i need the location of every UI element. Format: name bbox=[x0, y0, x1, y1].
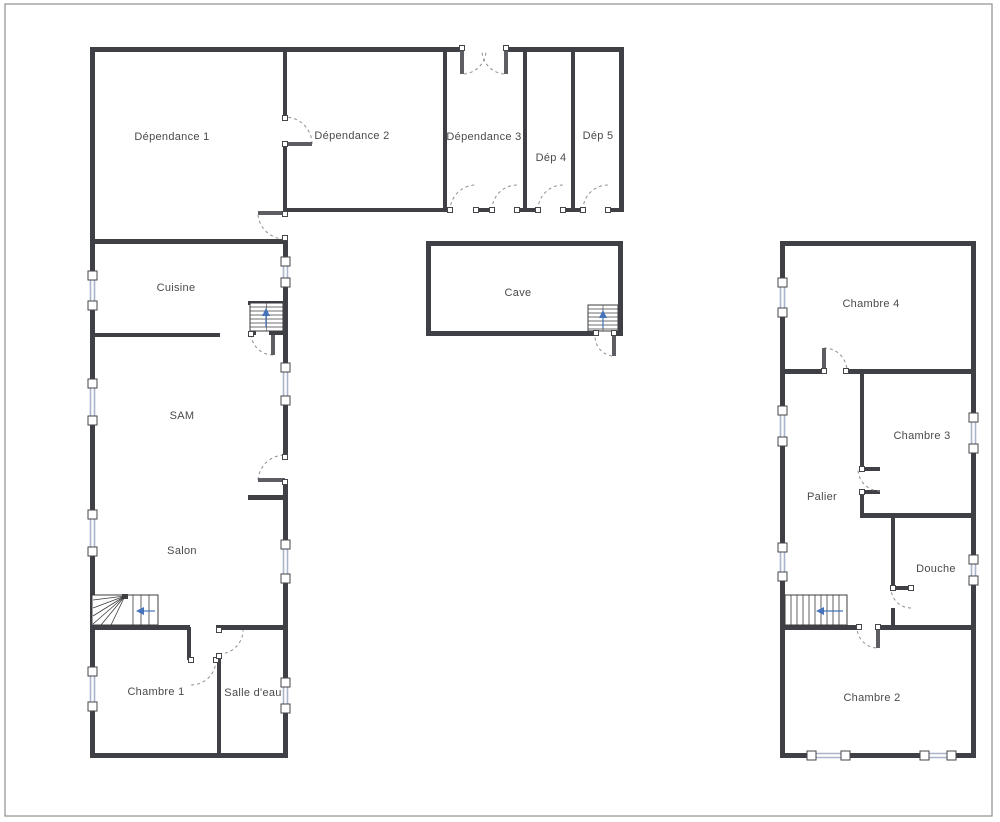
window-frame-square bbox=[920, 751, 929, 760]
porte-chambre-4-leaf bbox=[822, 348, 826, 371]
window-frame-square bbox=[947, 751, 956, 760]
wall bbox=[850, 753, 920, 758]
door-hinge-dot bbox=[490, 208, 495, 213]
door-hinge-dot bbox=[561, 208, 566, 213]
wall bbox=[780, 369, 824, 374]
porte-chambre-4-arc bbox=[824, 348, 847, 371]
porte-dependance1-dependance2-arc bbox=[285, 117, 312, 144]
wall bbox=[846, 369, 976, 374]
window-frame-square bbox=[778, 308, 787, 317]
wall bbox=[283, 244, 288, 257]
room-label-salon: Salon bbox=[167, 545, 197, 557]
wall bbox=[780, 753, 807, 758]
window-frame-square bbox=[778, 278, 787, 287]
wall bbox=[426, 241, 623, 246]
room-label-dep-4: Dép 4 bbox=[536, 152, 567, 164]
wall bbox=[90, 47, 460, 52]
porte-escalier-cuisine-leaf bbox=[271, 335, 275, 355]
porte-dep4-sud-arc bbox=[538, 185, 563, 210]
room-label-palier: Palier bbox=[807, 491, 837, 503]
window-frame-square bbox=[88, 667, 97, 676]
door-hinge-dot bbox=[283, 455, 288, 460]
window-frame-square bbox=[969, 576, 978, 585]
wall bbox=[283, 713, 288, 758]
porte-dep5-sud-arc bbox=[583, 185, 608, 210]
door-hinge-dot bbox=[612, 331, 617, 336]
porte-chambre-2-arc bbox=[857, 627, 876, 648]
wall bbox=[283, 482, 288, 540]
window-frame-square bbox=[841, 751, 850, 760]
door-hinge-dot bbox=[283, 212, 288, 217]
window-frame-square bbox=[281, 363, 290, 372]
wall bbox=[517, 208, 538, 212]
window-frame-square bbox=[281, 257, 290, 266]
window-frame-square bbox=[807, 751, 816, 760]
window-frame-square bbox=[281, 678, 290, 687]
wall bbox=[780, 581, 785, 758]
porte-chambre-1-arc bbox=[191, 660, 216, 685]
wall bbox=[571, 47, 575, 212]
wall bbox=[283, 47, 287, 118]
door-hinge-dot bbox=[460, 46, 465, 51]
window-frame-square bbox=[281, 540, 290, 549]
window-frame-square bbox=[281, 396, 290, 405]
wall bbox=[90, 753, 288, 758]
window-frame-square bbox=[88, 271, 97, 280]
wall bbox=[90, 711, 95, 758]
wall bbox=[971, 585, 976, 758]
door-hinge-dot bbox=[283, 480, 288, 485]
wall bbox=[90, 425, 95, 510]
window-frame-square bbox=[969, 444, 978, 453]
door-hinge-dot bbox=[504, 46, 509, 51]
wall bbox=[90, 333, 220, 337]
wall bbox=[780, 317, 785, 406]
porte-chambre-3-arc bbox=[858, 469, 880, 491]
wall bbox=[780, 446, 785, 543]
porte-sam-exterieur-leaf bbox=[258, 478, 285, 482]
wall bbox=[891, 608, 895, 627]
wall bbox=[248, 495, 285, 500]
wall bbox=[971, 241, 976, 413]
room-label-chambre-4: Chambre 4 bbox=[842, 298, 899, 310]
porte-couloir-dependance1-leaf bbox=[258, 211, 285, 215]
window-frame-square bbox=[778, 437, 787, 446]
room-label-douche: Douche bbox=[916, 563, 956, 575]
door-hinge-dot bbox=[448, 208, 453, 213]
floorplan-page: Dépendance 1 Dépendance 2 Dépendance 3 D… bbox=[0, 0, 1000, 822]
wall bbox=[285, 208, 450, 212]
wall bbox=[426, 331, 596, 336]
wall bbox=[780, 625, 859, 630]
wall bbox=[283, 405, 288, 457]
room-label-cuisine: Cuisine bbox=[157, 282, 196, 294]
room-label-chambre-2: Chambre 2 bbox=[843, 692, 900, 704]
room-label-cave: Cave bbox=[505, 287, 532, 299]
door-hinge-dot bbox=[876, 625, 881, 630]
window-frame-square bbox=[88, 379, 97, 388]
door-hinge-dot bbox=[860, 490, 865, 495]
window-frame-square bbox=[778, 572, 787, 581]
door-hinge-dot bbox=[581, 208, 586, 213]
door-hinge-dot bbox=[857, 625, 862, 630]
room-label-chambre-3: Chambre 3 bbox=[893, 430, 950, 442]
wall bbox=[891, 513, 895, 590]
door-hinge-dot bbox=[217, 654, 222, 659]
wall bbox=[619, 47, 624, 212]
wall bbox=[283, 144, 287, 214]
wall bbox=[90, 310, 95, 379]
wall bbox=[283, 287, 288, 363]
window-frame-square bbox=[88, 547, 97, 556]
window-frame-square bbox=[281, 574, 290, 583]
wall bbox=[217, 656, 221, 755]
room-label-chambre-1: Chambre 1 bbox=[127, 686, 184, 698]
door-hinge-dot bbox=[283, 236, 288, 241]
room-label-dependance-2: Dépendance 2 bbox=[314, 130, 389, 142]
porte-dependance3-sud-2-arc bbox=[492, 185, 517, 210]
window-frame-square bbox=[281, 278, 290, 287]
door-hinge-dot bbox=[822, 369, 827, 374]
window-frame-square bbox=[969, 413, 978, 422]
wall bbox=[443, 47, 447, 212]
door-hinge-dot bbox=[474, 208, 479, 213]
porte-dependance1-dependance2-leaf bbox=[285, 142, 312, 146]
room-label-dep-5: Dép 5 bbox=[583, 130, 614, 142]
door-hinge-dot bbox=[909, 586, 914, 591]
window-frame-square bbox=[88, 510, 97, 519]
wall bbox=[187, 627, 191, 660]
porte-chambre-2-leaf bbox=[876, 627, 880, 648]
door-hinge-dot bbox=[594, 331, 599, 336]
wall bbox=[90, 625, 190, 630]
window-frame-square bbox=[281, 704, 290, 713]
room-label-dependance-1: Dépendance 1 bbox=[134, 131, 209, 143]
porte-double-dependance3-gauche-leaf bbox=[460, 50, 464, 74]
porte-couloir-dependance1-arc bbox=[258, 215, 283, 239]
porte-salle-d-eau-arc bbox=[219, 630, 243, 654]
door-hinge-dot bbox=[606, 208, 611, 213]
porte-double-dependance3-droite-leaf bbox=[504, 50, 508, 74]
door-hinge-dot bbox=[844, 369, 849, 374]
door-hinge-dot bbox=[217, 628, 222, 633]
wall bbox=[878, 625, 976, 630]
porte-cave-arc bbox=[595, 336, 612, 356]
door-hinge-dot bbox=[189, 658, 194, 663]
window-frame-square bbox=[778, 406, 787, 415]
wall bbox=[216, 625, 283, 630]
door-hinge-dot bbox=[891, 586, 896, 591]
window-frame-square bbox=[88, 416, 97, 425]
door-hinge-dot bbox=[515, 208, 520, 213]
porte-sam-exterieur-arc bbox=[258, 455, 285, 480]
window-frame-square bbox=[969, 555, 978, 564]
wall bbox=[956, 753, 976, 758]
window-frame-square bbox=[88, 301, 97, 310]
room-label-salle-d-eau: Salle d'eau bbox=[224, 687, 281, 699]
door-hinge-dot bbox=[283, 142, 288, 147]
door-hinge-dot bbox=[860, 467, 865, 472]
porte-cave-leaf bbox=[612, 336, 616, 356]
wall bbox=[523, 47, 527, 212]
porte-escalier-cuisine-arc bbox=[251, 333, 273, 355]
room-label-dependance-3: Dépendance 3 bbox=[446, 131, 521, 143]
wall bbox=[780, 241, 785, 278]
wall bbox=[426, 241, 431, 336]
wall bbox=[780, 241, 976, 246]
wall bbox=[90, 47, 95, 271]
window-frame-square bbox=[88, 702, 97, 711]
room-label-sam: SAM bbox=[170, 410, 195, 422]
wall bbox=[269, 331, 283, 335]
wall bbox=[283, 583, 288, 678]
wall bbox=[618, 241, 623, 336]
door-hinge-dot bbox=[249, 332, 254, 337]
wall bbox=[860, 369, 864, 469]
window-frame-square bbox=[778, 543, 787, 552]
porte-dependance3-sud-1-arc bbox=[450, 185, 476, 211]
wall bbox=[90, 239, 288, 244]
escalier-palier-box bbox=[785, 595, 847, 625]
wall bbox=[860, 513, 976, 518]
wall bbox=[971, 453, 976, 555]
door-hinge-dot bbox=[536, 208, 541, 213]
door-hinge-dot bbox=[283, 116, 288, 121]
